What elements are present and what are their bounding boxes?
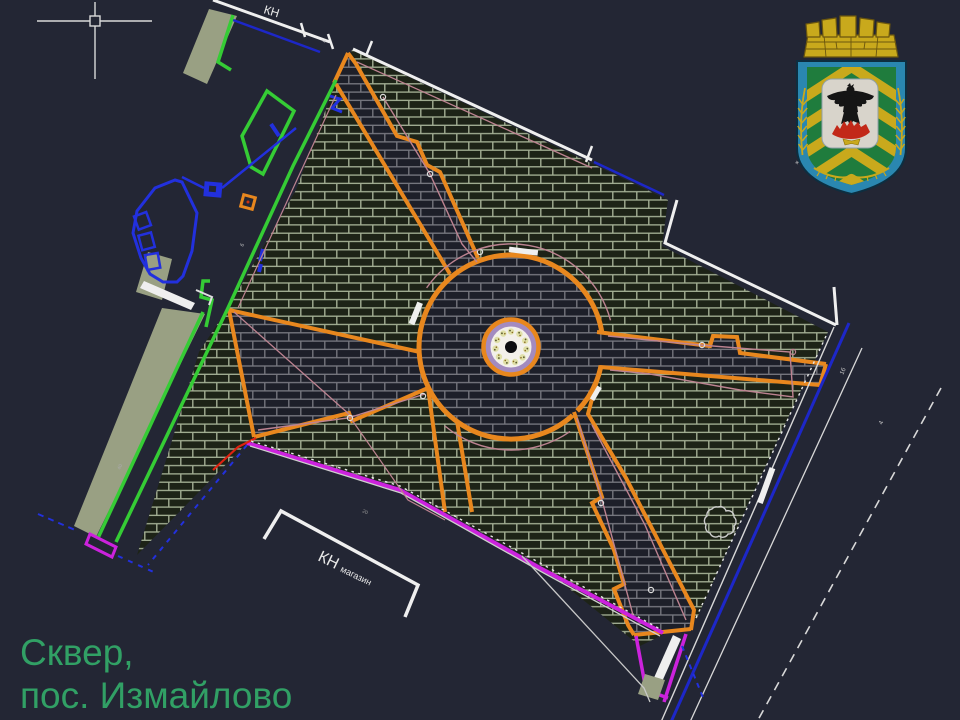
svg-text:пос. Измайлово: пос. Измайлово <box>20 675 292 716</box>
svg-text:Сквер,: Сквер, <box>20 632 134 673</box>
